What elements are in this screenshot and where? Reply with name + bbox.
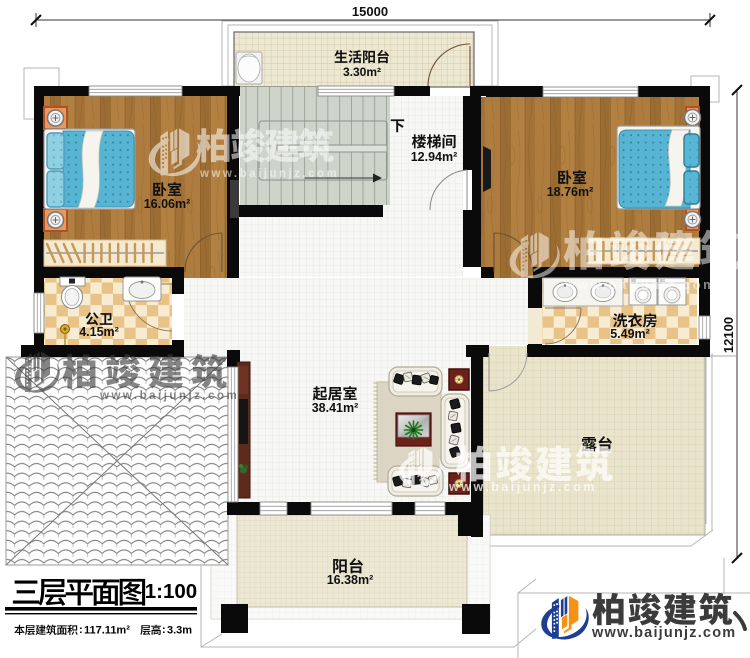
svg-text:www.baijunjz.com: www.baijunjz.com (591, 625, 736, 641)
svg-text:12100: 12100 (721, 317, 736, 353)
svg-text:16.38m²: 16.38m² (327, 573, 374, 587)
svg-text:www.baijunjz.com: www.baijunjz.com (99, 390, 239, 402)
svg-text:16.06m²: 16.06m² (144, 197, 191, 211)
svg-text:18.76m²: 18.76m² (547, 185, 594, 199)
svg-text:5.49m²: 5.49m² (610, 327, 650, 341)
svg-text:www.baijunjz.com: www.baijunjz.com (199, 168, 339, 180)
svg-text:3.30m²: 3.30m² (343, 65, 381, 79)
svg-text:38.41m²: 38.41m² (312, 401, 359, 415)
svg-text:3.3m: 3.3m (167, 625, 192, 637)
svg-text::: : (162, 624, 166, 636)
svg-text:15000: 15000 (352, 4, 388, 19)
svg-text:www.baijunjz.com: www.baijunjz.com (564, 277, 717, 292)
svg-text:1:100: 1:100 (145, 580, 197, 603)
svg-text:12.94m²: 12.94m² (411, 150, 458, 164)
svg-text:www.baijunjz.com: www.baijunjz.com (448, 480, 597, 494)
svg-text:117.11m²: 117.11m² (84, 625, 130, 637)
svg-text:4.15m²: 4.15m² (79, 325, 119, 339)
svg-text::: : (79, 624, 83, 636)
